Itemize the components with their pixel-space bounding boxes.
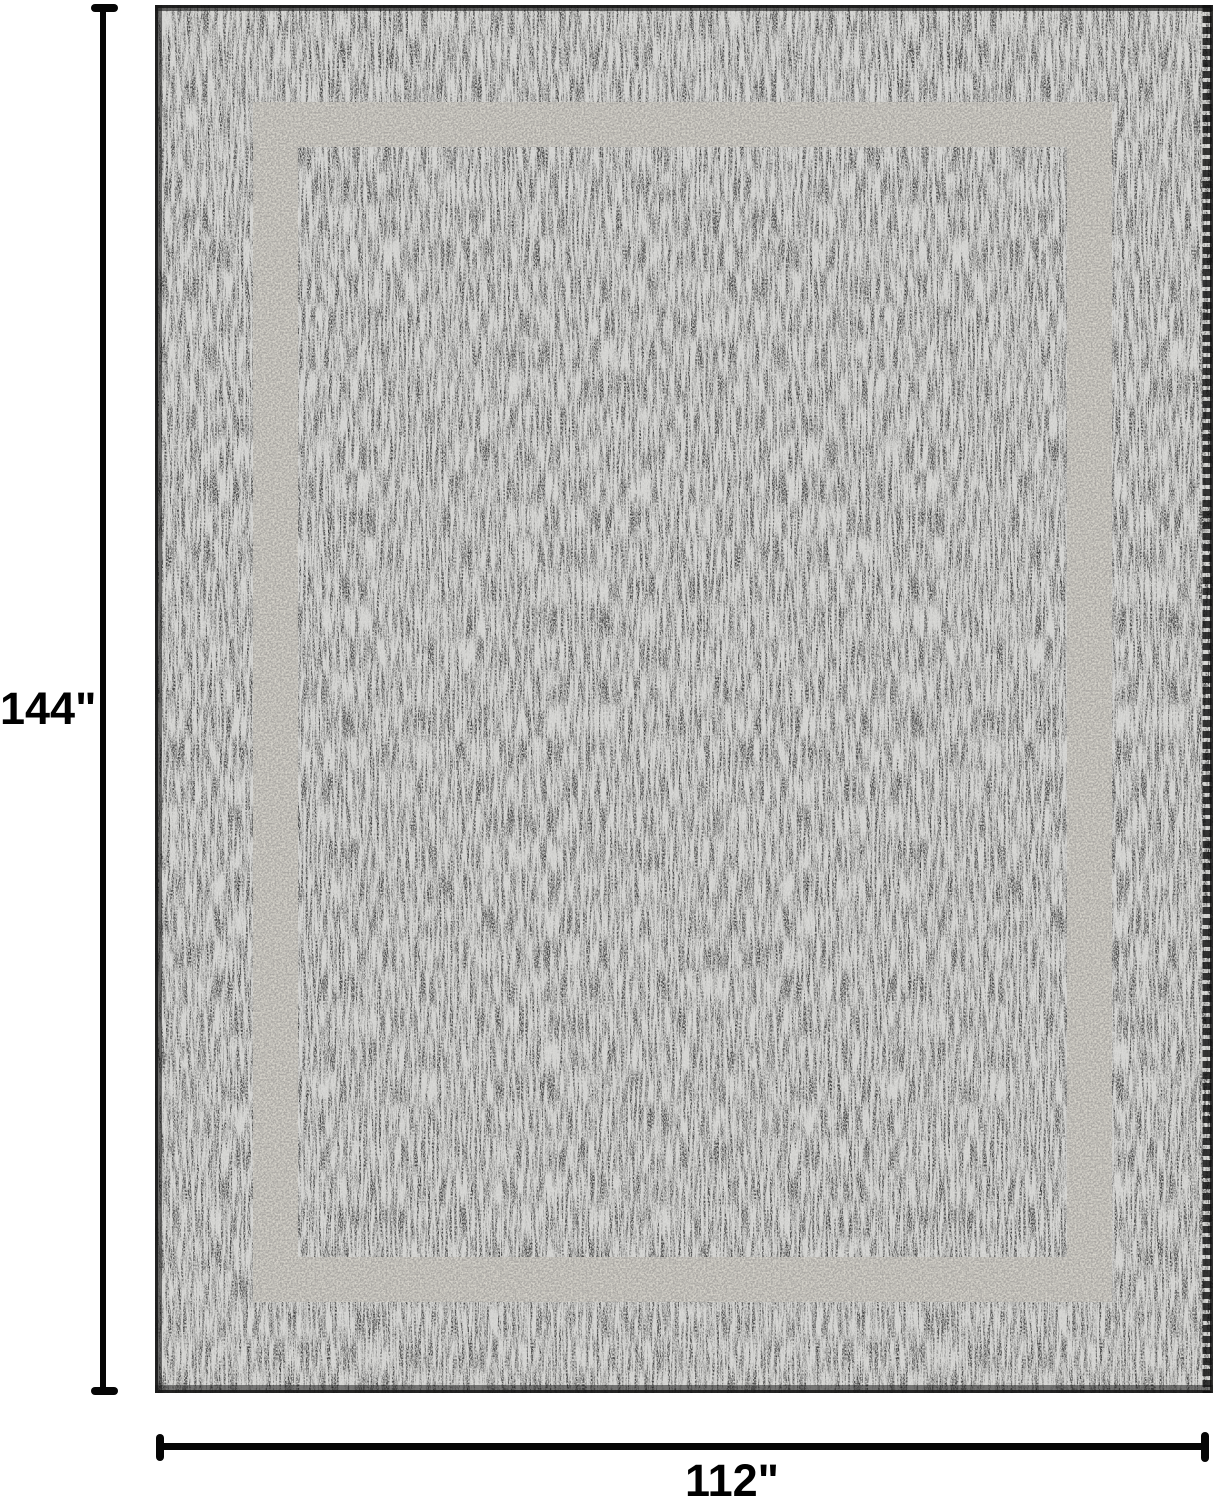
width-dimension-label: 112" — [632, 1458, 832, 1500]
height-line-cap-top — [91, 4, 118, 12]
height-dimension-line — [100, 7, 106, 1391]
width-line-cap-left — [156, 1434, 164, 1461]
rug-texture-grain — [155, 5, 1213, 1393]
rug-selvage-bottom — [155, 1385, 1213, 1393]
width-line-cap-right — [1201, 1432, 1209, 1462]
rug-photo — [155, 5, 1213, 1393]
height-dimension-label: 144" — [0, 686, 96, 731]
product-dimension-diagram: 144" 112" — [0, 0, 1215, 1500]
width-dimension-line — [160, 1443, 1205, 1450]
rug-selvage-top — [155, 5, 1213, 11]
rug-selvage-left — [155, 5, 162, 1393]
height-line-cap-bottom — [91, 1387, 118, 1395]
